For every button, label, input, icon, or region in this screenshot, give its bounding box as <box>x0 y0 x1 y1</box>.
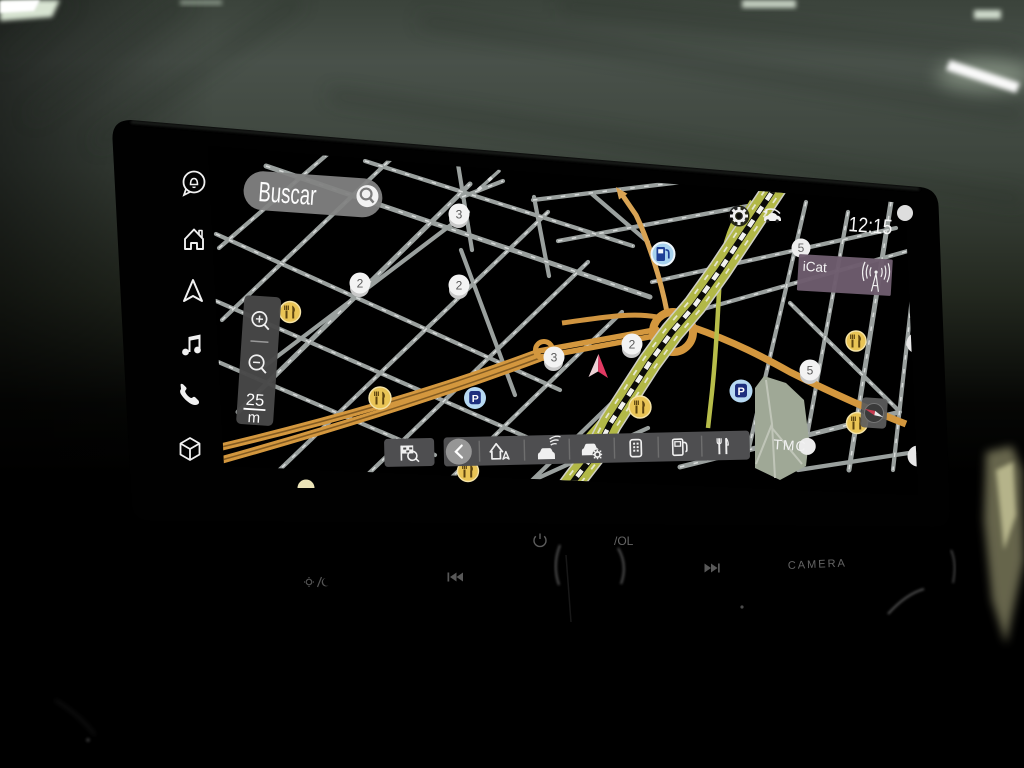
svg-text:2: 2 <box>629 337 636 351</box>
svg-text:m: m <box>247 409 261 427</box>
svg-text:iCat: iCat <box>802 259 827 275</box>
svg-text:5: 5 <box>798 241 805 255</box>
svg-text:2: 2 <box>456 278 463 292</box>
svg-text:3: 3 <box>551 350 558 364</box>
svg-text:2: 2 <box>357 276 364 290</box>
svg-text:Buscar: Buscar <box>257 176 317 211</box>
svg-text:3: 3 <box>456 207 463 221</box>
svg-text:P: P <box>738 386 745 398</box>
svg-text:P: P <box>472 393 479 405</box>
svg-text:TMC: TMC <box>773 436 807 454</box>
svg-text:25: 25 <box>245 391 265 410</box>
svg-text:/OL: /OL <box>614 534 634 548</box>
svg-text:5: 5 <box>807 363 814 377</box>
svg-text:12:15: 12:15 <box>848 213 894 239</box>
